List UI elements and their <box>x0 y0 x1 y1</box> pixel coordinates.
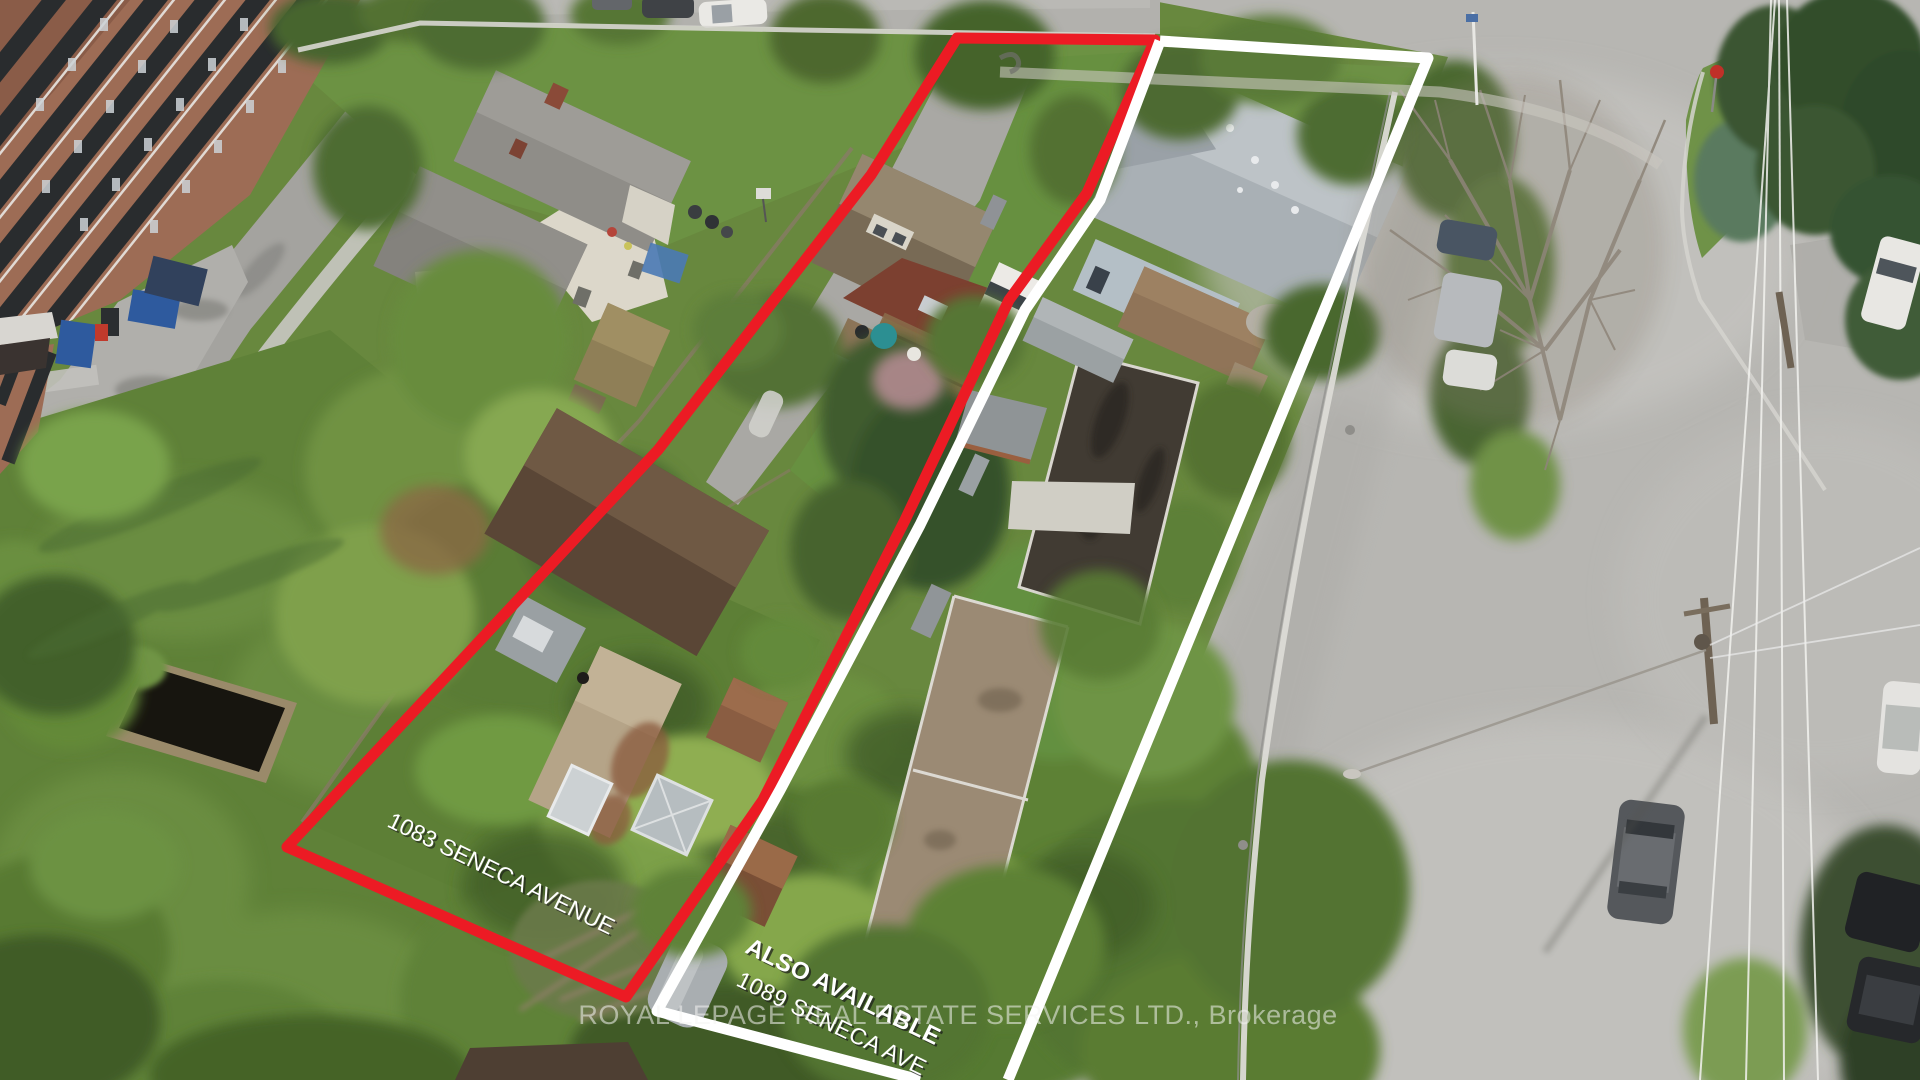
svg-text:ROYAL LEPAGE REAL ESTATE SERVI: ROYAL LEPAGE REAL ESTATE SERVICES LTD., … <box>578 1000 1337 1030</box>
